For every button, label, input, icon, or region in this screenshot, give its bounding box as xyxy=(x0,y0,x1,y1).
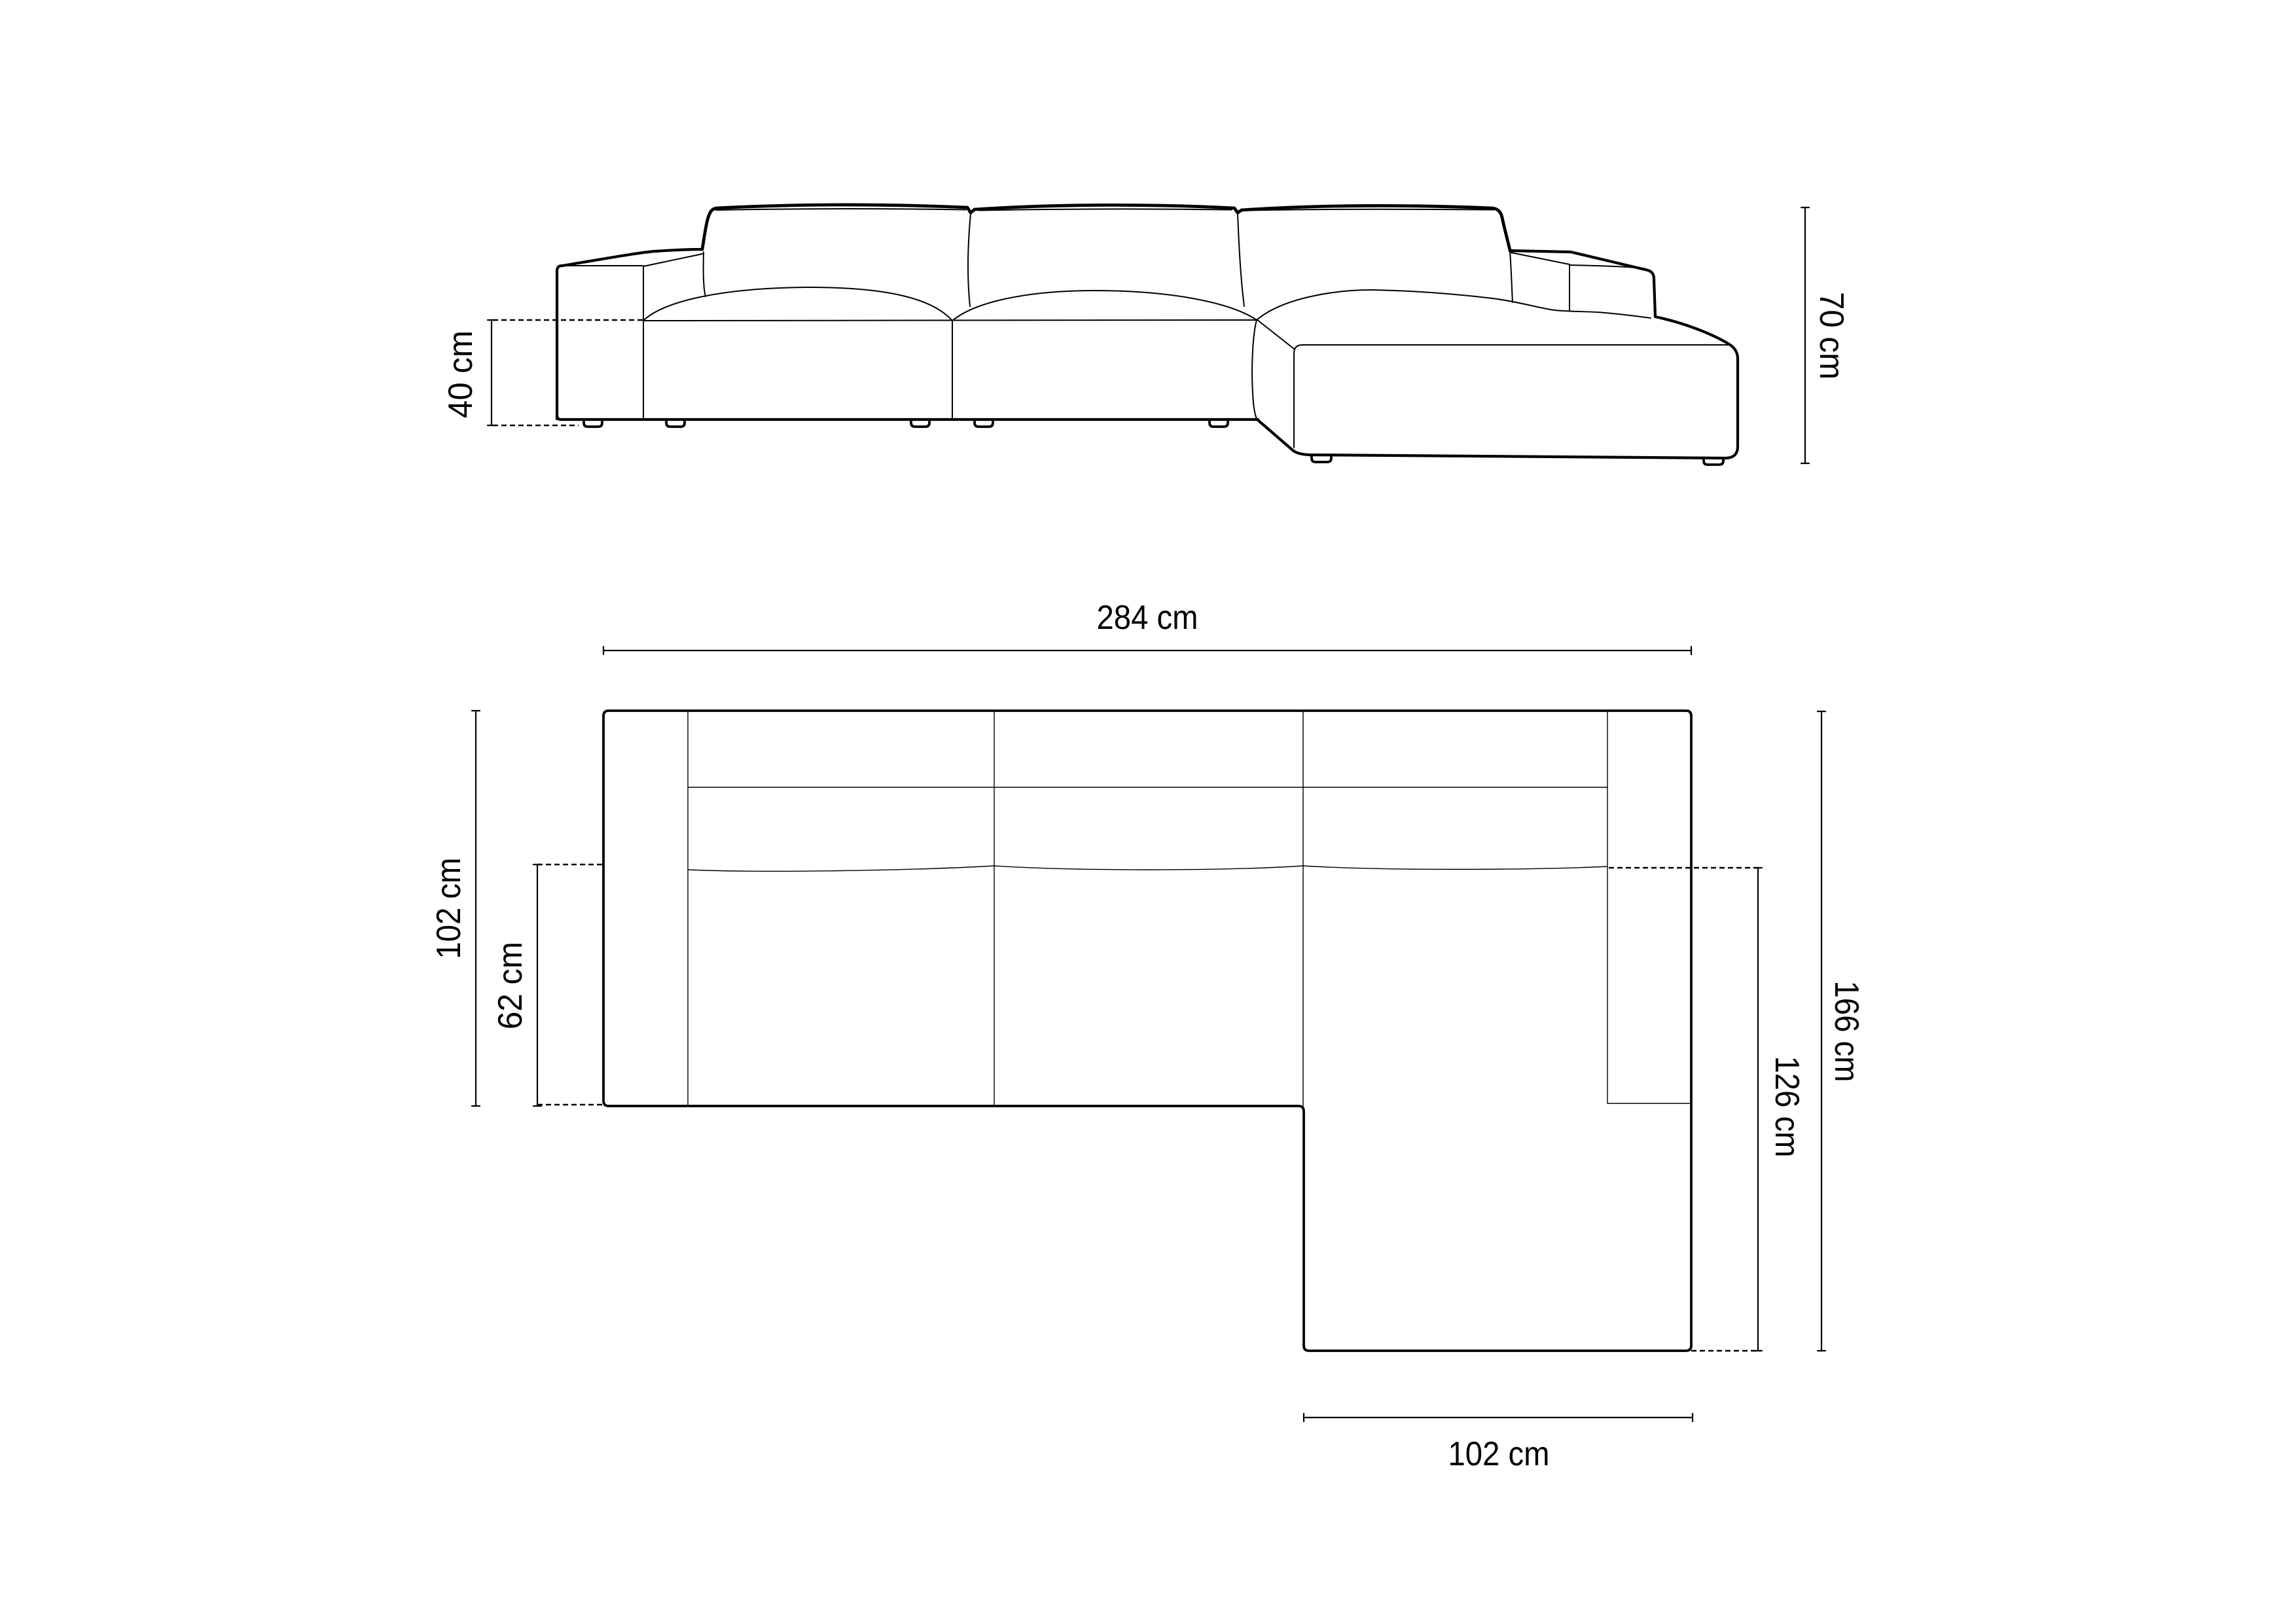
svg-text:40 cm: 40 cm xyxy=(442,330,480,418)
svg-text:102 cm: 102 cm xyxy=(430,858,468,959)
svg-text:166 cm: 166 cm xyxy=(1827,981,1865,1082)
svg-text:102 cm: 102 cm xyxy=(1448,1435,1550,1473)
svg-text:62 cm: 62 cm xyxy=(492,942,529,1029)
svg-text:70 cm: 70 cm xyxy=(1812,292,1850,380)
svg-text:284 cm: 284 cm xyxy=(1097,599,1198,637)
svg-text:126 cm: 126 cm xyxy=(1768,1056,1806,1158)
